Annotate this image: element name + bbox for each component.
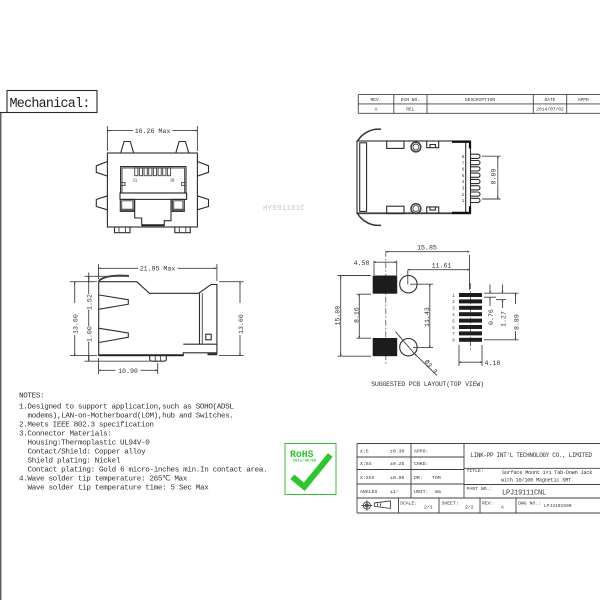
svg-text:DWG NO.:: DWG NO.: xyxy=(518,501,541,507)
svg-text:4.58: 4.58 xyxy=(354,260,370,267)
svg-text:REL: REL xyxy=(406,107,415,113)
svg-text:X:5X: X:5X xyxy=(360,461,372,467)
svg-text:2: 2 xyxy=(462,194,465,198)
svg-text:1: 1 xyxy=(462,200,465,204)
svg-text:LINK-PP INT'L TECHNOLOGY CO.,: LINK-PP INT'L TECHNOLOGY CO., LIMITED xyxy=(470,452,592,459)
svg-text:TOM: TOM xyxy=(432,475,441,481)
svg-text:J1: J1 xyxy=(132,179,138,183)
svg-text:3: 3 xyxy=(462,188,465,192)
svg-text:SUGGESTED PCB LAYOUT(TOP VIEW): SUGGESTED PCB LAYOUT(TOP VIEW) xyxy=(371,381,484,388)
svg-text:LPJ19111CNL: LPJ19111CNL xyxy=(502,490,546,498)
svg-text:HY991101C: HY991101C xyxy=(263,205,305,213)
svg-text:15.00: 15.00 xyxy=(335,306,342,326)
svg-text:8: 8 xyxy=(462,156,465,160)
svg-text:8.89: 8.89 xyxy=(490,169,497,185)
svg-text:LPJ4101500: LPJ4101500 xyxy=(544,503,572,509)
svg-text:Contact plating: Gold 6 micro-: Contact plating: Gold 6 micro-inches min… xyxy=(28,467,268,475)
svg-text:SCALE:: SCALE: xyxy=(400,501,417,507)
svg-text:3: 3 xyxy=(452,308,455,312)
svg-text:5: 5 xyxy=(452,320,455,324)
svg-text:NOTES:: NOTES: xyxy=(19,393,44,401)
svg-text:4.18: 4.18 xyxy=(485,360,501,367)
svg-text:PART NO.:: PART NO.: xyxy=(467,486,493,492)
svg-text:Contact/Shield: Copper alloy: Contact/Shield: Copper alloy xyxy=(28,449,147,457)
svg-text:2011/65/EU: 2011/65/EU xyxy=(293,459,317,464)
svg-text:X:XXX: X:XXX xyxy=(360,475,375,481)
svg-text:1: 1 xyxy=(452,295,455,299)
svg-text:1.52: 1.52 xyxy=(87,294,94,310)
svg-text:11.61: 11.61 xyxy=(432,263,452,270)
svg-text:11.43: 11.43 xyxy=(424,307,431,327)
svg-text:10.90: 10.90 xyxy=(118,368,138,375)
svg-text:modems),LAN-on-Motherboard(LOM: modems),LAN-on-Motherboard(LOM),hub and … xyxy=(28,413,234,421)
svg-text:±1°: ±1° xyxy=(390,489,399,495)
svg-text:DATE: DATE xyxy=(544,97,555,103)
svg-text:1.00: 1.00 xyxy=(87,326,94,342)
svg-text:2/1: 2/1 xyxy=(424,505,433,511)
svg-text:8.89: 8.89 xyxy=(513,314,520,330)
svg-text:0.76: 0.76 xyxy=(488,309,495,325)
svg-text:7: 7 xyxy=(452,333,455,337)
svg-text:2014/07/02: 2014/07/02 xyxy=(536,107,564,113)
svg-text:UNIT:: UNIT: xyxy=(414,489,428,495)
svg-text:4: 4 xyxy=(452,314,455,318)
svg-text:21.95 Max: 21.95 Max xyxy=(140,266,176,273)
svg-text:7: 7 xyxy=(462,162,465,166)
svg-text:5: 5 xyxy=(462,175,465,179)
svg-text:1.Designed to support applicat: 1.Designed to support application,such a… xyxy=(19,404,234,412)
svg-text:Surface Mount 1×1 Tab-Down Jac: Surface Mount 1×1 Tab-Down Jack xyxy=(502,470,592,476)
svg-text:APPD: APPD xyxy=(578,97,589,103)
svg-text:Wave solder tip temperature ti: Wave solder tip temperature time: 5 Sec … xyxy=(28,485,210,493)
svg-text:8.16: 8.16 xyxy=(353,307,360,323)
svg-text:ANGLES: ANGLES xyxy=(360,489,377,495)
svg-text:SHEET:: SHEET: xyxy=(442,501,459,507)
svg-text:REV.: REV. xyxy=(370,97,381,103)
svg-text:6: 6 xyxy=(462,169,465,173)
svg-text:CHKD:: CHKD: xyxy=(414,461,428,467)
svg-text:4.Wave solder tip temperature:: 4.Wave solder tip temperature: 265℃ Max xyxy=(19,475,188,484)
svg-text:mm: mm xyxy=(435,490,441,495)
svg-text:13.60: 13.60 xyxy=(238,314,245,334)
svg-text:Mechanical:: Mechanical: xyxy=(10,97,90,112)
svg-text:±0.30: ±0.30 xyxy=(390,449,405,455)
svg-text:X:5: X:5 xyxy=(360,449,369,455)
svg-text:REV:: REV: xyxy=(482,501,494,507)
svg-text:8: 8 xyxy=(452,340,455,344)
svg-text:4: 4 xyxy=(462,181,465,185)
svg-text:1.27: 1.27 xyxy=(501,311,508,327)
svg-text:APPO:: APPO: xyxy=(414,449,428,455)
svg-text:Shield plating: Nickel: Shield plating: Nickel xyxy=(28,458,121,466)
svg-text:2.Meets IEEE 802.3 specificati: 2.Meets IEEE 802.3 specification xyxy=(19,422,154,430)
svg-text:13.60: 13.60 xyxy=(73,314,80,334)
svg-text:RoHS: RoHS xyxy=(290,449,314,460)
svg-text:A: A xyxy=(501,505,504,511)
svg-text:2/2: 2/2 xyxy=(465,505,474,511)
svg-text:ECN NO.: ECN NO. xyxy=(401,97,420,103)
svg-text:15.85: 15.85 xyxy=(417,245,437,252)
svg-text:3.Connector Materials:: 3.Connector Materials: xyxy=(19,431,112,439)
svg-text:with 10/100 Magnetic SMT: with 10/100 Magnetic SMT xyxy=(501,478,571,484)
svg-text:DR:: DR: xyxy=(414,475,423,481)
svg-text:Housing:Thermoplastic UL94V-0: Housing:Thermoplastic UL94V-0 xyxy=(28,440,151,448)
svg-text:TITLE:: TITLE: xyxy=(467,468,484,474)
svg-text:6: 6 xyxy=(452,327,455,331)
svg-text:A: A xyxy=(375,107,378,113)
svg-text:DESCRIPTION: DESCRIPTION xyxy=(465,97,496,103)
svg-text:16.26 Max: 16.26 Max xyxy=(135,128,171,135)
svg-text:J8: J8 xyxy=(170,179,176,183)
svg-text:2: 2 xyxy=(452,301,455,305)
svg-text:Ø3.3: Ø3.3 xyxy=(423,358,439,375)
svg-text:±0.05: ±0.05 xyxy=(390,475,405,481)
svg-text:±0.25: ±0.25 xyxy=(390,461,405,467)
